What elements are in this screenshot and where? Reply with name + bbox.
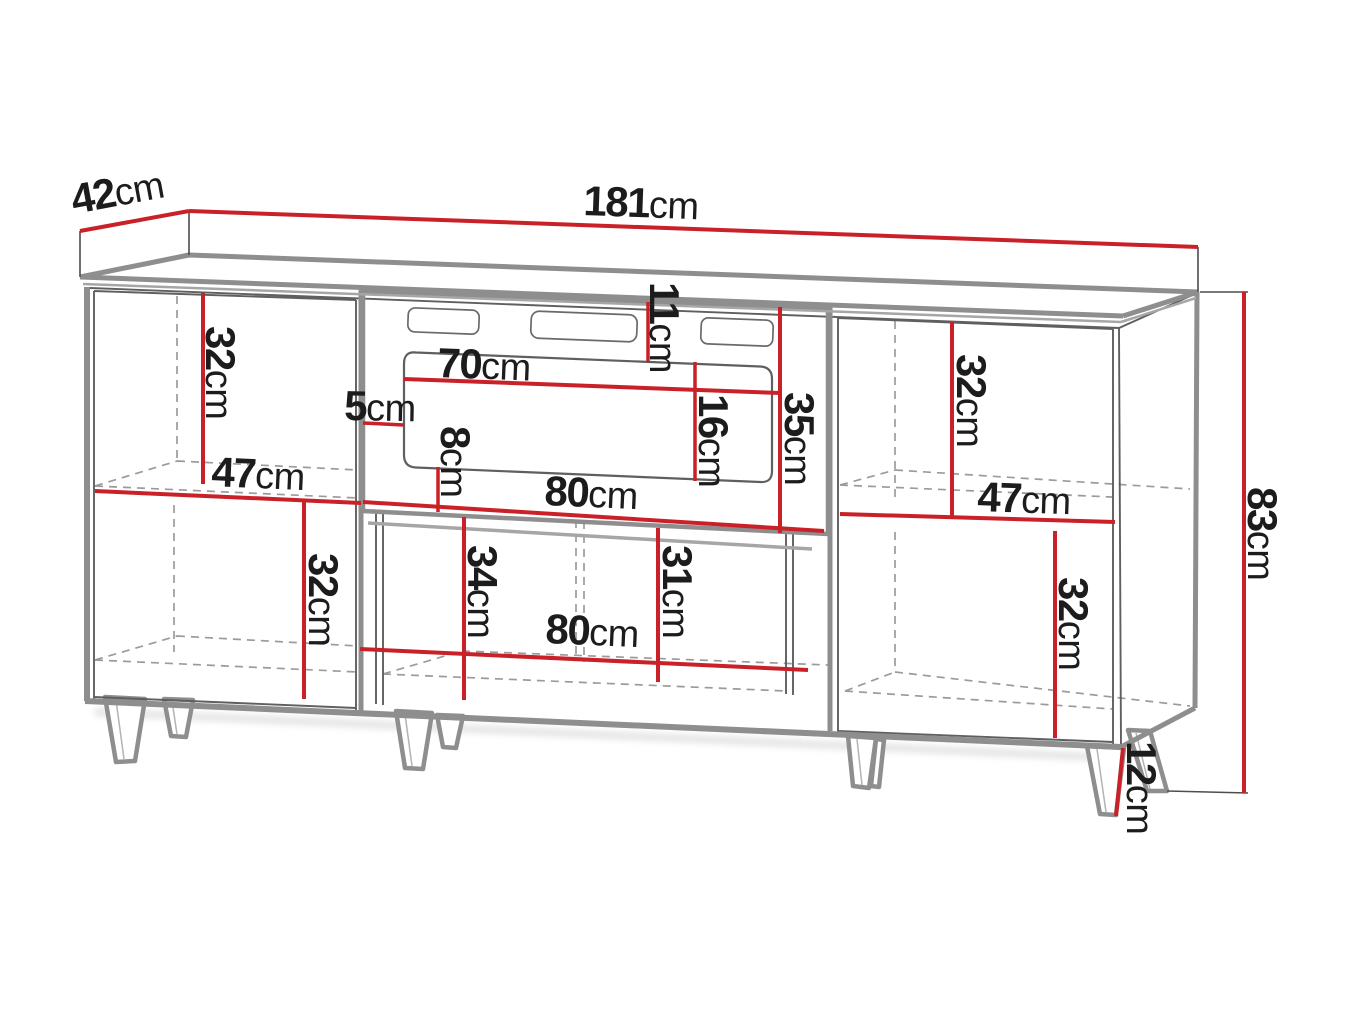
vent-slot-middle [531,311,638,342]
dim-label-niche-35: 35cm [776,392,823,485]
dim-label-gap-11: 11cm [641,282,688,373]
leg-middle-front [396,711,432,769]
top-panel-edges [80,255,1198,316]
dim-label-leg-height: 12cm [1118,741,1165,834]
back-right-edges [1121,292,1197,747]
dim-label-depth: 42cm [67,160,167,223]
leg-left-front [105,697,145,762]
dim-label-left-47: 47cm [211,448,306,499]
dim-label-right-upper-32: 32cm [948,354,995,447]
dim-label-mid-31: 31cm [654,545,701,638]
dim-label-inset-5: 5cm [344,382,416,430]
vent-slot-right [701,318,774,347]
diagram-canvas: 42cm 181cm 83cm 12cm 32cm 47cm 32cm 5cm … [0,0,1349,1011]
dim-label-mid-80: 80cm [545,605,640,656]
floor-shadow [95,712,1118,758]
dim-label-niche-80: 80cm [544,467,639,518]
dim-label-left-lower-32: 32cm [300,553,347,646]
furniture-dimension-diagram: 42cm 181cm 83cm 12cm 32cm 47cm 32cm 5cm … [0,0,1349,1011]
dim-label-right-47: 47cm [977,473,1072,523]
dim-label-gap-8: 8cm [432,426,479,498]
vent-slot-left [408,308,480,335]
dim-label-mid-34: 34cm [459,545,506,638]
dim-label-insert-70: 70cm [437,339,532,390]
dim-label-right-lower-32: 32cm [1050,577,1097,670]
dim-label-opening-16: 16cm [690,394,737,487]
dim-label-width: 181cm [583,177,700,228]
dim-label-left-upper-32: 32cm [197,326,244,419]
dim-label-total-height: 83cm [1239,487,1286,580]
